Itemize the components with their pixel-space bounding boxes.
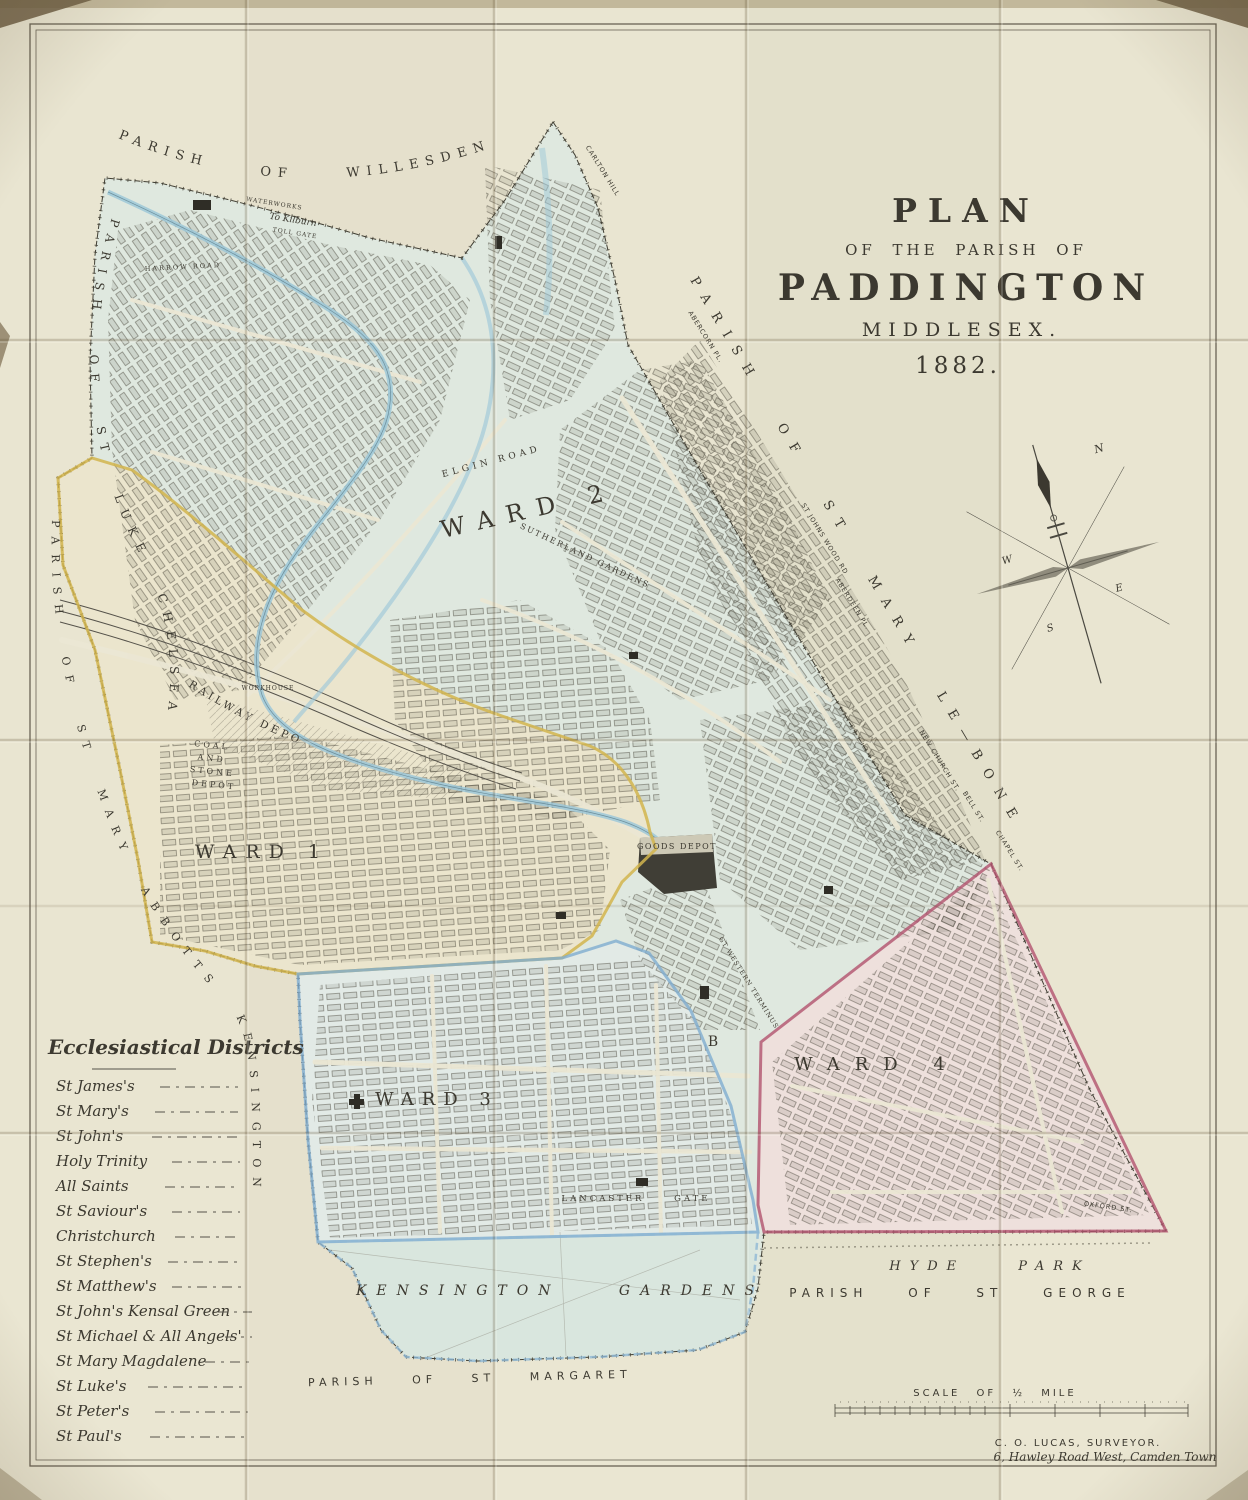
map-sheet: PARISH OF WILLESDEN PARISH OF ST LUKE CH… — [0, 0, 1248, 1500]
vignette-overlay — [0, 0, 1248, 1500]
paddington-parish-map: PARISH OF WILLESDEN PARISH OF ST LUKE CH… — [0, 0, 1248, 1500]
